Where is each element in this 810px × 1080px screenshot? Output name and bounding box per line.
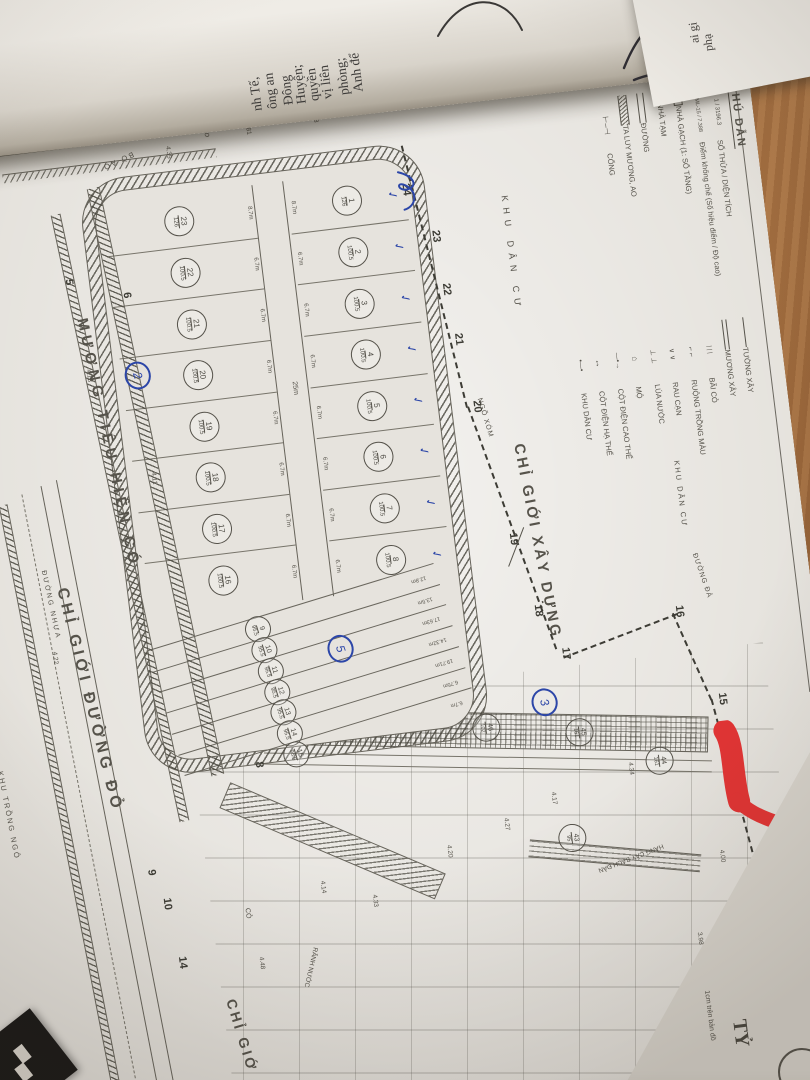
legend-symbol	[599, 97, 615, 154]
legend-symbol	[636, 93, 647, 124]
legend-symbol	[610, 333, 624, 389]
plot-width-label: 8.7m	[287, 182, 299, 233]
spot-height-label: 4.33	[371, 894, 379, 907]
spot-height-label: 4.00	[718, 849, 726, 862]
spot-height-label: 4.17	[550, 792, 558, 805]
boundary-point-number: 17	[559, 647, 572, 661]
blue-pen-scribble	[389, 166, 424, 215]
blue-check-mark: ✓	[428, 547, 445, 562]
legend-symbol	[590, 335, 607, 392]
spot-height-label: 4.14	[319, 880, 327, 893]
legend-label: BÃI CỎ	[708, 377, 720, 403]
boundary-point-number: 14	[176, 956, 189, 970]
plot-number-circle: 20100.5	[181, 359, 214, 392]
legend-label: TƯỜNG XÂY	[741, 347, 756, 394]
boundary-point-number: 16	[673, 605, 686, 619]
plot-width-label: 6.7m	[446, 698, 468, 710]
plot-number-circle: 7100.5	[368, 492, 401, 525]
plot-width-label: 6.75m	[439, 677, 461, 689]
plot-number-circle: 18100.5	[194, 461, 227, 494]
legend-label: NHÀ TẠM	[655, 103, 668, 137]
label-grass: CỎ	[244, 908, 252, 919]
boundary-point-number: 21	[452, 332, 465, 346]
boundary-point-number: 10	[161, 897, 174, 911]
blue-check-mark: ✓	[409, 393, 426, 408]
legend-symbol	[646, 328, 661, 385]
road-length-label: 25m	[291, 381, 300, 395]
map-sheet: CHÚ DẪN 1 / 3196.3 SỐ THỬA / DIỆN TÍCH M…	[0, 45, 810, 1080]
legend-label: MƯƠNG XÂY	[723, 349, 738, 397]
plot-number-circle: 19100.5	[188, 410, 221, 443]
photo-of-cadastral-map: 1cm trên bản đồ TỶ CHÚ DẪN 1 / 3196.3 SỐ…	[0, 0, 810, 1080]
plot-width-label: 13.5m	[414, 594, 436, 606]
boundary-point-number: 22	[440, 283, 453, 297]
plot-number-circle: 21100.5	[175, 307, 208, 340]
corner-page-fragment: phạ	[700, 33, 717, 52]
spot-height-label: 4.18	[85, 369, 93, 382]
legend-symbol	[573, 337, 587, 393]
plot-width-label: 6.7m	[319, 438, 331, 489]
plot-number-circle: 3100.5	[343, 287, 376, 320]
spot-height-label: 4.27	[502, 817, 510, 830]
boundary-dashed-line	[563, 613, 678, 659]
legend-symbol	[741, 317, 747, 347]
blue-check-mark: ✓	[391, 239, 408, 254]
blue-check-mark: ✓	[397, 290, 414, 305]
plot-width-label: 17.63m	[420, 615, 442, 627]
corner-page	[630, 0, 810, 107]
legend-label: KHU DÂN CƯ	[579, 393, 594, 441]
plot-number-circle: 17100.5	[200, 512, 233, 545]
handwritten-curve	[432, 0, 528, 42]
spot-height-label: 4.22	[51, 651, 59, 664]
legend-label: CỘT ĐIỆN HẠ THẾ	[597, 390, 614, 456]
legend-symbol	[627, 330, 643, 387]
legend-symbol	[683, 324, 697, 380]
plot-number-circle: 6100.5	[362, 440, 395, 473]
legend-symbol	[617, 95, 630, 126]
spot-height-label: 4.34	[627, 762, 635, 775]
label-red-line-boundary: CHỈ GIỚI ĐƯỜNG ĐỎ	[52, 586, 125, 814]
spot-height-label: 4.20	[445, 845, 453, 858]
plot-number-circle: 16100.5	[207, 564, 240, 597]
plot-number-circle: 1126	[330, 184, 363, 217]
spot-height-label: 4.11	[150, 472, 158, 485]
legend-column-1: 1 / 3196.3 SỐ THỬA / DIỆN TÍCH ML-15 / 7…	[539, 83, 750, 329]
plot-width-label: 6.7m	[325, 490, 337, 541]
plot-number-circle: 2100.5	[337, 235, 370, 268]
plot-width-label: 12.8m	[408, 573, 430, 585]
spot-height-label: 4.35	[164, 146, 172, 159]
boundary-point-number: 9	[145, 869, 158, 877]
plot-width-label: 6.7m	[306, 336, 318, 387]
blue-check-mark: ✓	[416, 444, 433, 459]
plot-number-circle: 5100.5	[355, 389, 388, 422]
label-residential-area: KHU DÂN CƯ	[500, 195, 524, 313]
legend-symbol	[721, 319, 730, 349]
boundary-point-number: 23	[429, 229, 442, 243]
legend-symbol	[702, 322, 715, 378]
plot-width-label: 6.7m	[331, 541, 343, 592]
label-corn-area: KHU TRỒNG NGÔ	[0, 770, 22, 860]
plot-number-circle: 22100.5	[169, 256, 202, 289]
legend-label: RAU CẠN	[671, 381, 684, 416]
scale-title-fragment: TỶ	[727, 1018, 753, 1048]
plot-width-label: 6.7m	[300, 285, 312, 336]
plot-width-label: 14.32m	[427, 636, 449, 648]
spot-height-label: 3.98	[696, 932, 704, 945]
scale-note-fragment: 1cm trên bản đồ	[703, 990, 716, 1041]
legend-column-2: TƯỜNG XÂY MƯƠNG XÂY BÃI CỎ	[567, 316, 781, 587]
legend: CHÚ DẪN 1 / 3196.3 SỐ THỬA / DIỆN TÍCH M…	[541, 80, 805, 591]
plot-number-circle: 4100.5	[349, 338, 382, 371]
blue-check-mark: ✓	[422, 495, 439, 510]
circle-stamp	[778, 1048, 810, 1080]
legend-label: MỘ	[634, 386, 644, 399]
plot-width-label: 19.71m	[433, 657, 455, 669]
plot-width-label: 6.7m	[313, 387, 325, 438]
plot-width-label: 6.7m	[294, 233, 306, 284]
blue-check-mark: ✓	[403, 342, 420, 357]
legend-label: CỐNG	[605, 153, 617, 176]
spot-height-label: 4.48	[258, 956, 266, 969]
boundary-point-number: 15	[716, 692, 729, 706]
plot-number-circle: 23126	[163, 205, 196, 238]
legend-symbol	[665, 326, 680, 383]
legend-label: LÚA NƯỚC	[652, 384, 666, 425]
legend-label: ĐƯỜNG	[639, 122, 652, 152]
